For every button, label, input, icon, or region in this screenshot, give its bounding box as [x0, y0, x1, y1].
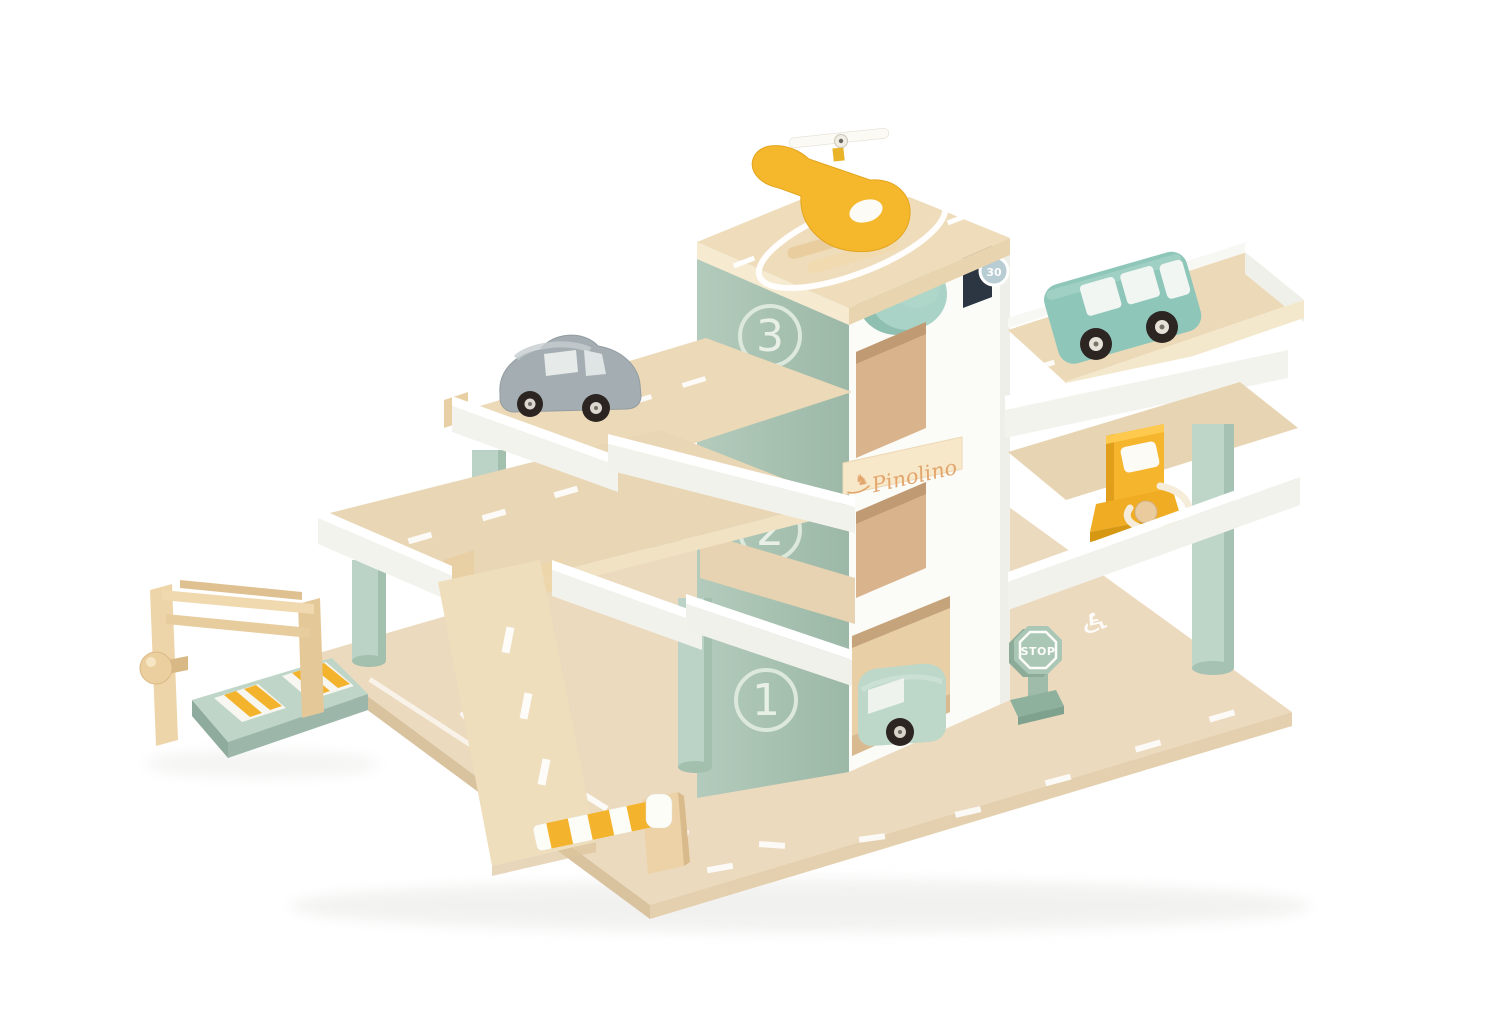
pillar-level2-a [352, 560, 386, 667]
toy-garage-scene: ♿ 3 [0, 0, 1500, 1030]
helicopter-rotor-pin [839, 139, 843, 143]
gray-car [500, 335, 641, 422]
tower-front-face-shade [1000, 240, 1010, 704]
product-photo: ♿ 3 [0, 0, 1500, 1030]
mint-car [858, 664, 946, 746]
helicopter-mast [832, 147, 844, 161]
level-1-label: 1 [752, 675, 780, 726]
barrier-pivot-cap [646, 794, 672, 828]
pillar-right-tall [1192, 424, 1234, 675]
speed-30-label: 30 [986, 266, 1002, 279]
gray-car-window [544, 350, 578, 376]
stop-sign-label: STOP [1021, 645, 1056, 658]
elevator-tower: 3 2 1 ♞ Pinolino [697, 128, 1010, 798]
level-3-label: 3 [756, 311, 784, 362]
lift-crank [140, 652, 188, 684]
car-lift [140, 580, 368, 758]
